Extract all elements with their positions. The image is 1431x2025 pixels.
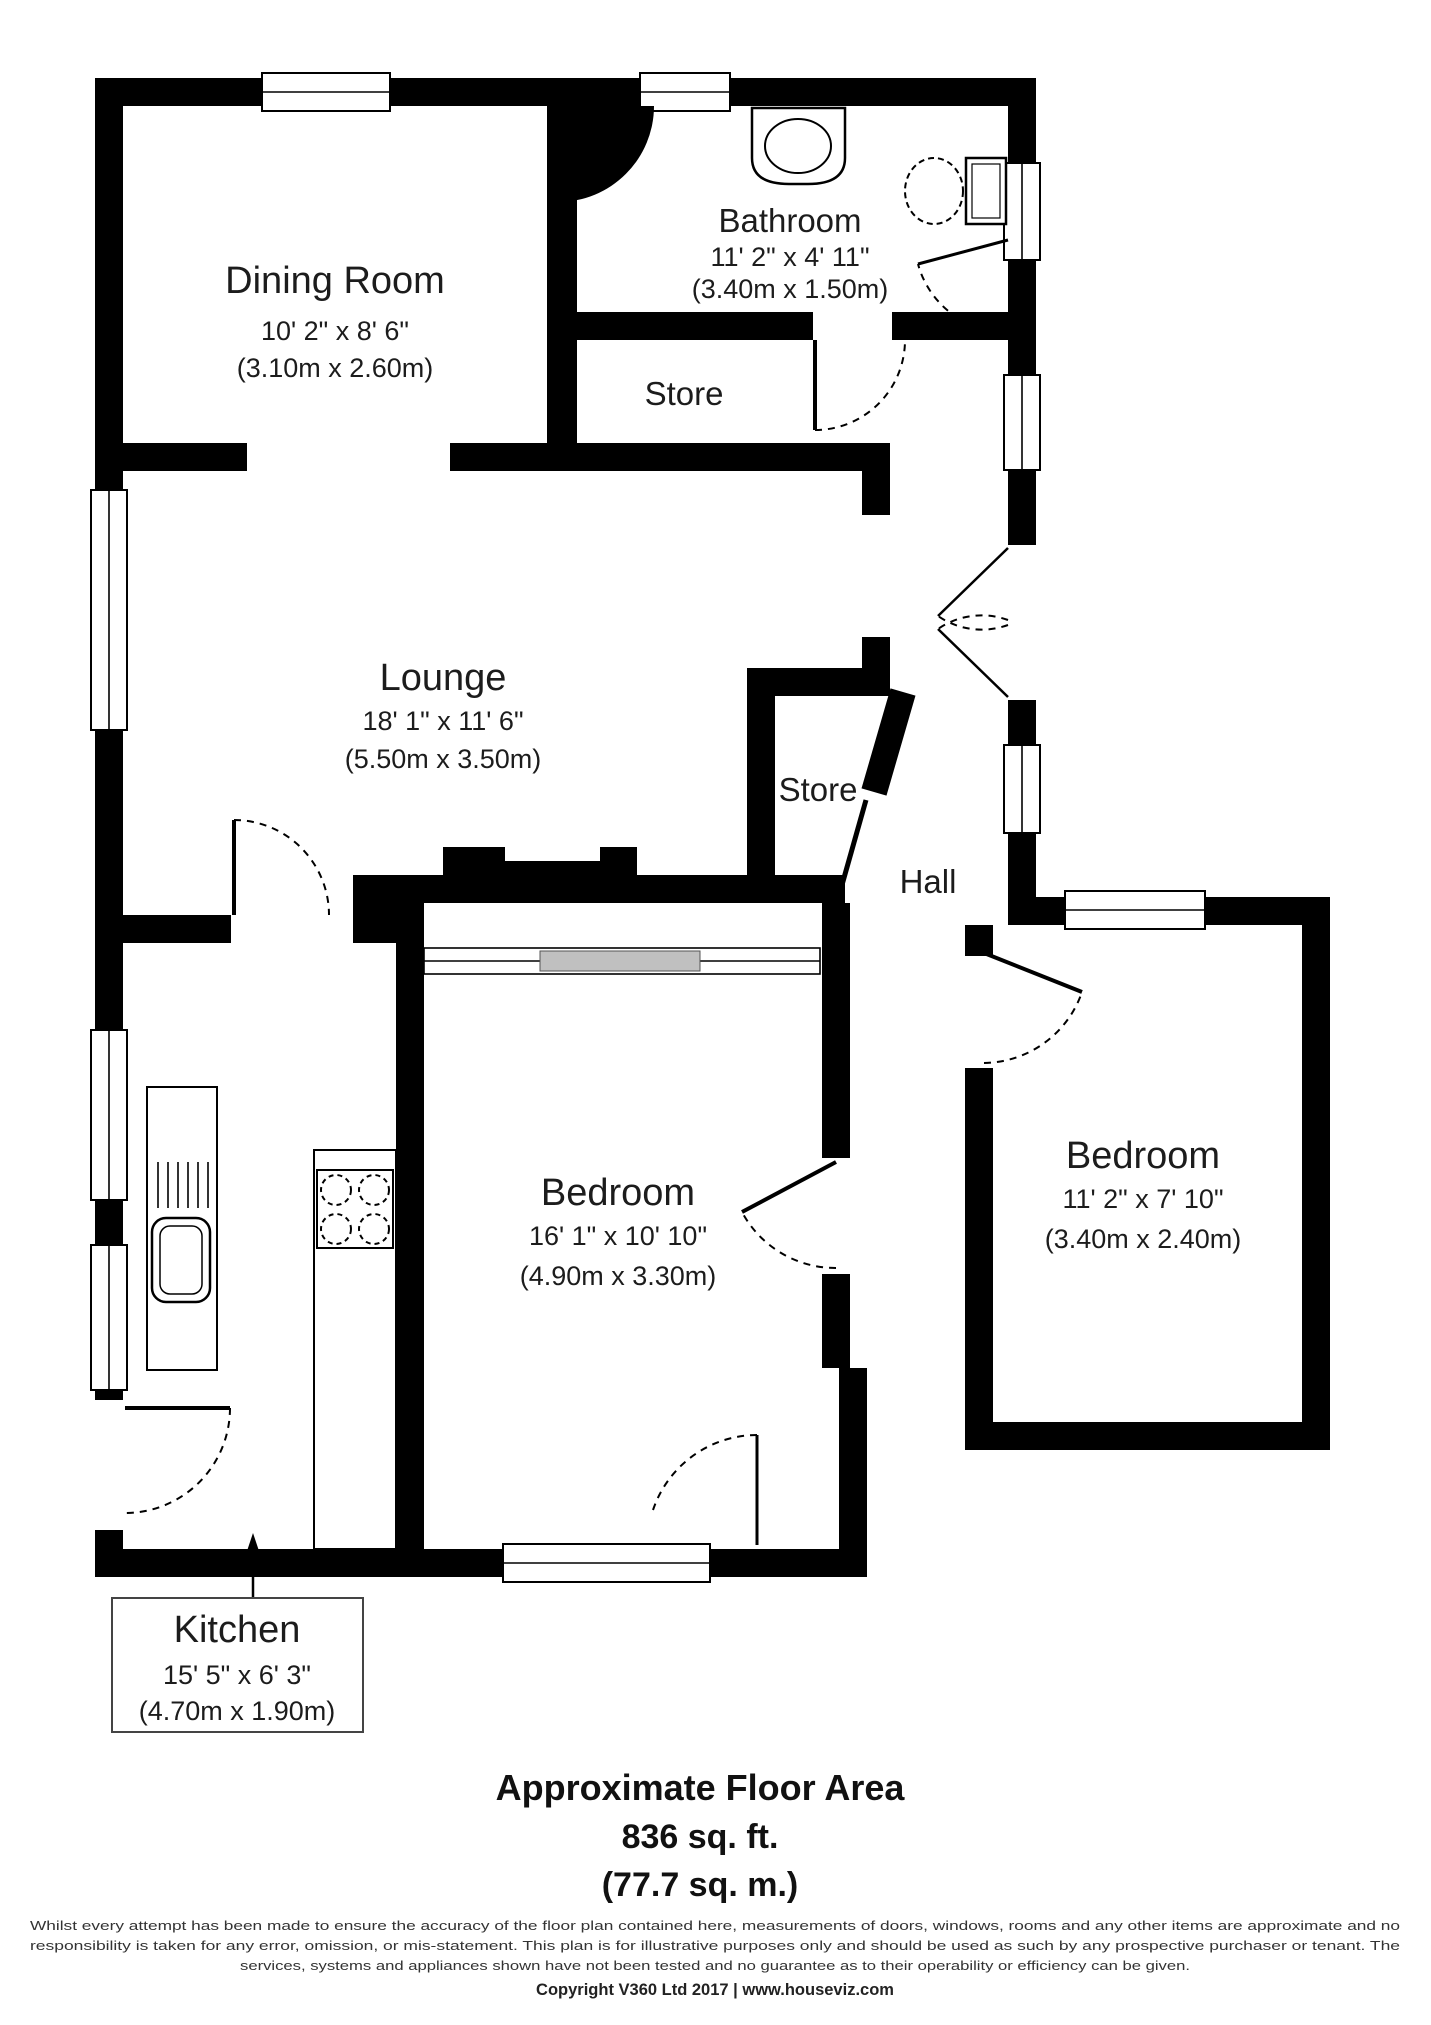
wall-bedroom2-right: [1302, 897, 1330, 1450]
wall-kitchen-bedroom-divider: [396, 903, 424, 1549]
wall-corridor-stub: [862, 443, 890, 515]
window-kitchen-left-1: [91, 1030, 127, 1200]
window-right-2: [1004, 375, 1040, 470]
wall-bathroom-bottom: [577, 312, 1008, 340]
store2-name: Store: [779, 771, 858, 808]
wall-dining-bottom-stub: [95, 443, 247, 471]
opening-bedroom1-door: [820, 1158, 852, 1274]
bathroom-dims-ft: 11' 2" x 4' 11": [710, 242, 869, 272]
wall-store2-angled: [874, 692, 903, 792]
bedroom-second-dims-m: (3.40m x 2.40m): [1045, 1224, 1242, 1254]
kitchen-dims-ft: 15' 5" x 6' 3": [163, 1660, 311, 1690]
floorplan-canvas: Dining Room 10' 2" x 8' 6" (3.10m x 2.60…: [0, 0, 1431, 2025]
bedroom-main-dims-m: (4.90m x 3.30m): [520, 1261, 717, 1291]
disclaimer-line-2: responsibility is taken for any error, o…: [30, 1938, 1400, 1953]
kitchen-lounge-door: [234, 820, 329, 915]
copyright-line: Copyright V360 Ltd 2017 | www.houseviz.c…: [536, 1981, 894, 1999]
door-openings: [93, 310, 1038, 1530]
store1-name: Store: [645, 375, 724, 412]
disclaimer-line-3: services, systems and appliances shown h…: [240, 1958, 1190, 1973]
bedroom2-door: [984, 953, 1082, 1063]
window-right-1: [1004, 163, 1040, 260]
wall-store2-left: [747, 668, 775, 903]
bathroom-label: Bathroom 11' 2" x 4' 11" (3.40m x 1.50m): [692, 202, 889, 304]
dining-room-dims-ft: 10' 2" x 8' 6": [261, 316, 409, 346]
window-lounge-left: [91, 490, 127, 730]
bath-sink-icon: [752, 108, 845, 184]
wall-bedroom2-bottom: [965, 1422, 1330, 1450]
wardrobe-icon: [424, 948, 820, 974]
chimney-notch: [505, 845, 600, 861]
opening-kitchen-back-door: [93, 1400, 125, 1530]
lounge-dims-m: (5.50m x 3.50m): [345, 744, 542, 774]
kitchen-label-box: Kitchen 15' 5" x 6' 3" (4.70m x 1.90m): [112, 1598, 363, 1732]
footer-title: Approximate Floor Area: [496, 1767, 906, 1808]
lounge-name: Lounge: [380, 657, 507, 699]
wall-kitchen-top: [123, 915, 231, 943]
wall-store2-stub: [862, 637, 890, 672]
bathroom-dims-m: (3.40m x 1.50m): [692, 274, 889, 304]
kitchen-name: Kitchen: [174, 1609, 301, 1651]
wall-bedroom1-top: [353, 875, 845, 903]
bedroom-second-label: Bedroom 11' 2" x 7' 10" (3.40m x 2.40m): [1045, 1135, 1242, 1254]
wall-lounge-top: [450, 443, 890, 471]
bedroom-second-dims-ft: 11' 2" x 7' 10": [1062, 1184, 1223, 1214]
front-door: [653, 1435, 757, 1545]
floorplan-page: Dining Room 10' 2" x 8' 6" (3.10m x 2.60…: [0, 0, 1431, 2025]
store-door: [815, 340, 905, 430]
double-doors: [938, 548, 1008, 697]
opening-double-doors: [1006, 545, 1038, 700]
dining-room-name: Dining Room: [225, 260, 445, 302]
lounge-dims-ft: 18' 1" x 11' 6": [362, 706, 523, 736]
bathroom-name: Bathroom: [718, 202, 861, 239]
wall-bottom: [95, 1549, 867, 1577]
opening-bedroom2-door: [963, 956, 995, 1068]
disclaimer-line-1: Whilst every attempt has been made to en…: [30, 1918, 1400, 1933]
bedroom-second-name: Bedroom: [1066, 1135, 1220, 1177]
kitchen-back-door: [125, 1408, 230, 1513]
bedroom-main-label: Bedroom 16' 1" x 10' 10" (4.90m x 3.30m): [520, 1172, 717, 1291]
window-kitchen-left-2: [91, 1245, 127, 1390]
kitchen-counter-sink-icon: [147, 1087, 217, 1370]
footer: Approximate Floor Area 836 sq. ft. (77.7…: [30, 1767, 1400, 1999]
kitchen-island-hob-icon: [314, 1150, 396, 1549]
store2-door: [840, 800, 866, 892]
toilet-icon: [905, 158, 1006, 224]
bedroom-main-dims-ft: 16' 1" x 10' 10": [529, 1221, 707, 1251]
window-dining-top: [262, 73, 390, 111]
window-bedroom2-top: [1065, 891, 1205, 929]
bedroom-main-name: Bedroom: [541, 1172, 695, 1214]
window-bathroom-top: [640, 73, 730, 111]
footer-area-m: (77.7 sq. m.): [602, 1866, 799, 1904]
window-right-3: [1004, 745, 1040, 833]
bathroom-door-wedge: [558, 106, 654, 202]
window-bedroom1-bottom: [503, 1544, 710, 1582]
wall-bedroom1-right: [822, 903, 850, 1368]
lounge-label: Lounge 18' 1" x 11' 6" (5.50m x 3.50m): [345, 657, 542, 774]
dining-room-label: Dining Room 10' 2" x 8' 6" (3.10m x 2.60…: [225, 260, 445, 383]
kitchen-dims-m: (4.70m x 1.90m): [139, 1696, 336, 1726]
dining-room-dims-m: (3.10m x 2.60m): [237, 353, 434, 383]
hall-name: Hall: [900, 863, 957, 900]
wall-top: [95, 78, 1036, 106]
footer-area-ft: 836 sq. ft.: [622, 1818, 779, 1856]
wall-hall-right: [839, 1368, 867, 1577]
opening-store-door: [813, 310, 892, 342]
